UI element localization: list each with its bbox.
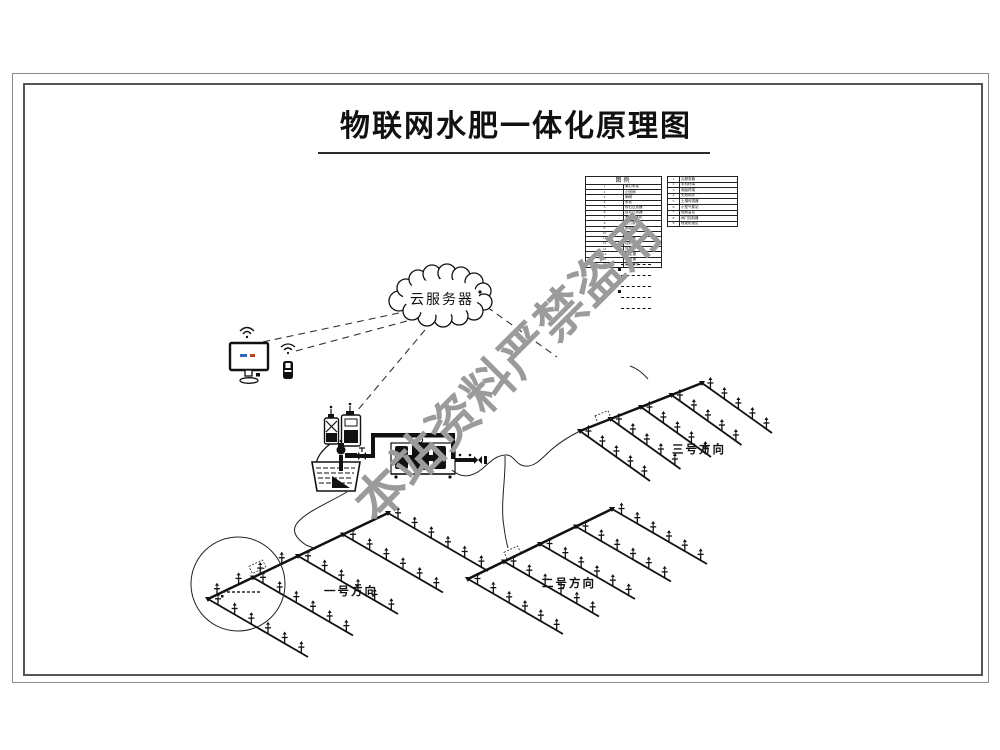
linetype-sample <box>621 275 651 276</box>
title-underline <box>318 152 710 154</box>
field-label-direction-2: 二号方向 <box>542 575 596 591</box>
water-tank <box>312 462 360 491</box>
wifi-icon <box>281 344 295 354</box>
linetype-dot <box>618 290 621 293</box>
field-label-direction-1: 一号方向 <box>324 583 378 599</box>
field-label-direction-3: 三号方向 <box>672 441 726 457</box>
usb-dongle-icon <box>281 344 295 379</box>
outlet-piping <box>455 454 487 464</box>
wifi-icon <box>240 328 254 339</box>
linetype-dot <box>618 268 621 271</box>
fertilizer-machine <box>391 437 455 478</box>
cloud-server-label: 云服务器 <box>407 289 477 309</box>
cloud-dot <box>478 290 481 293</box>
linetype-sample <box>621 264 651 265</box>
legend-header: 图例 <box>586 177 662 185</box>
fertigation-equipment <box>312 403 487 491</box>
sprinkler-field-1 <box>205 507 488 657</box>
wireless-link-dashed-lines <box>258 307 557 411</box>
linetype-sample <box>621 297 651 298</box>
drawing-title: 物联网水肥一体化原理图 <box>320 101 712 145</box>
sprinkler-field-3 <box>577 377 772 481</box>
drawing-page: 物联网水肥一体化原理图 <box>0 0 1000 750</box>
fertilizer-bottle-1 <box>325 406 339 444</box>
monitor-icon <box>230 328 268 384</box>
legend-table-secondary: 1云服务器2手机终端3电脑终端4无线网关5土壤传感器6小型气象站7视频监控8阀门… <box>667 176 738 227</box>
fertilizer-bottle-2 <box>342 403 361 446</box>
legend-row: 9喷灌轮灌区 <box>668 221 738 227</box>
linetype-sample <box>621 286 651 287</box>
linetype-sample <box>621 308 651 309</box>
sprinkler-field-2 <box>465 503 707 635</box>
legend-table-main: 图例 1离心水泵2止回阀3闸阀4水表5砂石过滤器6叠片过滤器7水肥一体机8压力表… <box>585 176 662 268</box>
